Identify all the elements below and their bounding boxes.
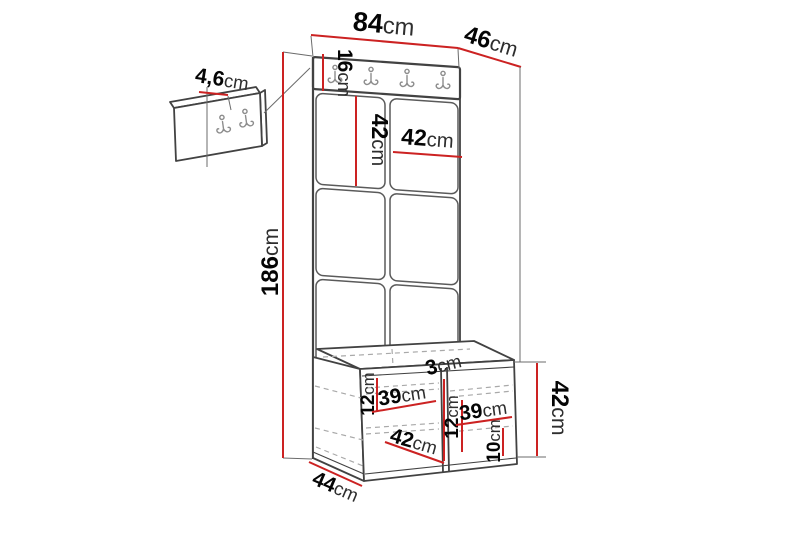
furniture-dimension-diagram: 84cm 46cm 4,6cm 16cm 42cm 42cm	[0, 0, 800, 533]
dim-depth-total-label: 46cm	[461, 21, 521, 63]
dim-depth-total: 46cm	[458, 21, 521, 362]
dim-bench-top-gap-left-label: 12cm	[358, 372, 379, 415]
dim-plinth-height-label: 10cm	[484, 419, 505, 462]
panel-tile	[316, 188, 385, 280]
dim-bench-height: 42cm	[514, 362, 573, 457]
dim-bench-height-label: 42cm	[546, 381, 573, 436]
dim-rail-height-label: 16cm	[333, 49, 356, 97]
panel-link-line	[264, 68, 310, 113]
panel-tile	[390, 193, 458, 285]
bench-left-side	[313, 357, 364, 481]
dim-bench-top-gap-left: 12cm	[358, 372, 379, 415]
dim-tile-height-label: 42cm	[367, 114, 393, 167]
dim-width-total-label: 84cm	[352, 6, 416, 41]
dim-plinth-height: 10cm	[484, 419, 505, 462]
dim-height-total-label: 186cm	[257, 228, 284, 296]
dim-small-panel-thickness-label: 4,6cm	[194, 64, 251, 95]
